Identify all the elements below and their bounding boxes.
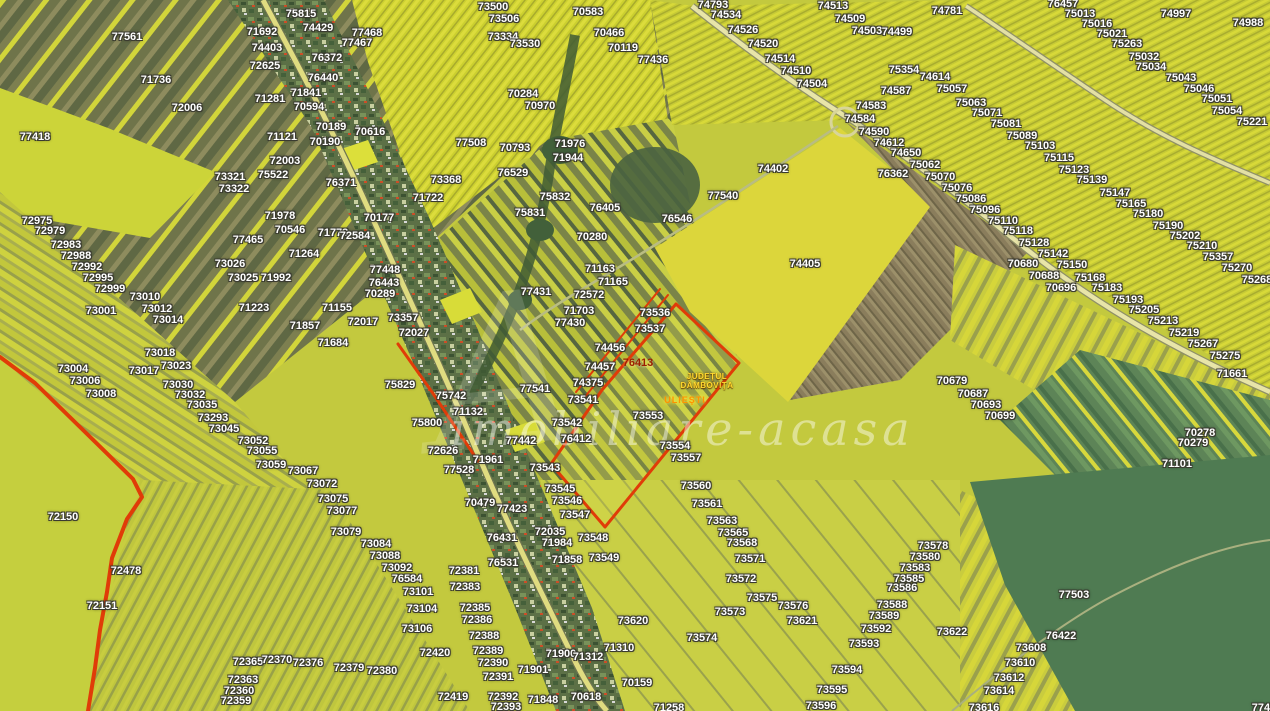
parcel-label: 73101 xyxy=(403,586,434,598)
parcel-label: 75190 xyxy=(1153,220,1184,232)
parcel-label: 72393 xyxy=(491,701,522,711)
parcel-label: 70699 xyxy=(985,410,1016,422)
parcel-label: 74534 xyxy=(711,9,742,21)
parcel-label: 76529 xyxy=(498,167,529,179)
parcel-label: 72379 xyxy=(334,662,365,674)
parcel-label: 72626 xyxy=(428,445,459,457)
parcel-label: 73563 xyxy=(707,515,738,527)
parcel-label: 75270 xyxy=(1222,262,1253,274)
parcel-label: 71944 xyxy=(553,152,584,164)
parcel-label: 74513 xyxy=(818,0,849,12)
parcel-label: 77503 xyxy=(1059,589,1090,601)
parcel-label: 73592 xyxy=(861,623,892,635)
parcel-label: 74988 xyxy=(1233,17,1264,29)
parcel-label: 75275 xyxy=(1210,350,1241,362)
parcel-label: 73548 xyxy=(578,532,609,544)
parcel-label: 75210 xyxy=(1187,240,1218,252)
parcel-label: 73554 xyxy=(660,440,691,452)
parcel-label: 72992 xyxy=(72,261,103,273)
parcel-label: 73026 xyxy=(215,258,246,270)
parcel-label: 76371 xyxy=(326,177,357,189)
parcel-label: 71310 xyxy=(604,642,635,654)
parcel-label: 71722 xyxy=(413,192,444,204)
parcel-label: 77467 xyxy=(342,37,373,49)
parcel-label: 71132 xyxy=(453,406,483,418)
parcel-label: 71121 xyxy=(267,131,297,143)
parcel-label: 75165 xyxy=(1116,198,1147,210)
parcel-label: 72006 xyxy=(172,102,203,114)
parcel-label: 70618 xyxy=(571,691,602,703)
parcel-label: 73104 xyxy=(407,603,438,615)
parcel-label: 70279 xyxy=(1178,437,1209,449)
parcel-label: 77528 xyxy=(444,464,475,476)
parcel-label: 71264 xyxy=(289,248,320,260)
parcel-label: 76372 xyxy=(312,52,343,64)
parcel-label: 71992 xyxy=(261,272,292,284)
parcel-label: 74590 xyxy=(859,126,890,138)
parcel-label: 70546 xyxy=(275,224,306,236)
parcel-label: 73106 xyxy=(402,623,433,635)
parcel-label: 73596 xyxy=(806,700,837,711)
parcel-label: 75267 xyxy=(1188,338,1219,350)
parcel-label: 73001 xyxy=(86,305,117,317)
parcel-label: 71857 xyxy=(290,320,321,332)
parcel-label: 75123 xyxy=(1059,164,1090,176)
parcel-label: 72363 xyxy=(228,674,259,686)
parcel-label: 72150 xyxy=(48,511,79,523)
parcel-label: 72376 xyxy=(293,657,324,669)
parcel-labels-layer: 7756171736720067741872975729797581574429… xyxy=(0,0,1270,711)
parcel-label: 74514 xyxy=(765,53,796,65)
parcel-label: 72988 xyxy=(61,250,92,262)
parcel-label: 77442 xyxy=(506,435,537,447)
parcel-label: 73608 xyxy=(1016,642,1047,654)
parcel-label: 75268 xyxy=(1242,274,1270,286)
parcel-label: 74503 xyxy=(852,25,883,37)
parcel-label: 74520 xyxy=(748,38,779,50)
parcel-label: 73067 xyxy=(288,465,319,477)
parcel-label: 71841 xyxy=(291,87,322,99)
parcel-label: 75800 xyxy=(412,417,443,429)
parcel-label: 72389 xyxy=(473,645,504,657)
parcel-label: 73543 xyxy=(530,462,561,474)
parcel-label: 71661 xyxy=(1217,368,1248,380)
parcel-label: 75180 xyxy=(1133,208,1164,220)
parcel-label: 73578 xyxy=(918,540,949,552)
parcel-label: 70466 xyxy=(594,27,625,39)
parcel-label: 76405 xyxy=(590,202,621,214)
parcel-label: 73585 xyxy=(894,573,925,585)
parcel-label: 73530 xyxy=(510,38,541,50)
parcel-label: 72385 xyxy=(460,602,491,614)
parcel-label: 75063 xyxy=(956,97,987,109)
parcel-label: 73500 xyxy=(478,1,509,13)
parcel-label: 75086 xyxy=(956,193,987,205)
parcel-label: 73032 xyxy=(175,389,206,401)
parcel-label: 73506 xyxy=(489,13,520,25)
parcel-label: 70479 xyxy=(465,497,496,509)
parcel-label: 72027 xyxy=(399,327,430,339)
parcel-label: 73536 xyxy=(640,307,671,319)
parcel-label: 76457 xyxy=(1048,0,1079,10)
parcel-label: 70693 xyxy=(971,399,1002,411)
parcel-label: 73079 xyxy=(331,526,362,538)
parcel-label: 75128 xyxy=(1019,237,1050,249)
parcel-label: 71901 xyxy=(518,664,549,676)
parcel-label: 75815 xyxy=(286,8,317,20)
parcel-label: 73293 xyxy=(198,412,229,424)
parcel-label: 75139 xyxy=(1077,174,1108,186)
parcel-label: 75013 xyxy=(1065,8,1096,20)
parcel-label: 73571 xyxy=(735,553,766,565)
parcel-label: 73557 xyxy=(671,452,702,464)
parcel-label: 75168 xyxy=(1075,272,1106,284)
parcel-label: 75070 xyxy=(925,171,956,183)
parcel-label: 71155 xyxy=(322,302,352,314)
parcel-label: 75021 xyxy=(1097,28,1128,40)
parcel-label: 70177 xyxy=(364,212,395,224)
parcel-label: 71978 xyxy=(265,210,296,222)
parcel-label: 72390 xyxy=(478,657,509,669)
parcel-label: 77468 xyxy=(352,27,383,39)
parcel-label: 72419 xyxy=(438,691,469,703)
parcel-label: 75142 xyxy=(1038,248,1069,260)
parcel-label: 74504 xyxy=(797,78,828,90)
parcel-label: 75103 xyxy=(1025,140,1056,152)
parcel-label: 77431 xyxy=(521,286,552,298)
parcel-label: 71703 xyxy=(564,305,595,317)
parcel-label: 74584 xyxy=(845,113,876,125)
parcel-label: 75118 xyxy=(1003,225,1033,237)
parcel-label: 74457 xyxy=(585,361,616,373)
parcel-label: 74997 xyxy=(1161,8,1192,20)
parcel-label: 74402 xyxy=(758,163,789,175)
parcel-label: 72983 xyxy=(51,239,82,251)
parcel-label: 77508 xyxy=(456,137,487,149)
parcel-label: 75081 xyxy=(991,118,1022,130)
parcel-label: 74793 xyxy=(698,0,729,11)
parcel-label: 70688 xyxy=(1029,270,1060,282)
parcel-label: 73549 xyxy=(589,552,620,564)
parcel-label: 75205 xyxy=(1129,304,1160,316)
parcel-label: 72391 xyxy=(483,671,514,683)
parcel-label: 77540 xyxy=(708,190,739,202)
parcel-label: 75043 xyxy=(1166,72,1197,84)
parcel-label: 70679 xyxy=(937,375,968,387)
parcel-label: 75110 xyxy=(988,215,1018,227)
parcel-label: 75096 xyxy=(970,204,1001,216)
parcel-label: 73072 xyxy=(307,478,338,490)
parcel-label: 73545 xyxy=(545,483,576,495)
parcel-label: 73025 xyxy=(228,272,259,284)
parcel-label: 73368 xyxy=(431,174,462,186)
parcel-label: 76546 xyxy=(662,213,693,225)
parcel-label: 75221 xyxy=(1237,116,1268,128)
parcel-label: 73030 xyxy=(163,379,194,391)
parcel-label: 73576 xyxy=(778,600,809,612)
parcel-label: 73583 xyxy=(900,562,931,574)
parcel-label: 72035 xyxy=(535,526,566,538)
parcel-label: 73055 xyxy=(247,445,278,457)
parcel-label: 73537 xyxy=(635,323,666,335)
parcel-label: 75829 xyxy=(385,379,416,391)
parcel-label: 73561 xyxy=(692,498,723,510)
parcel-label: 73574 xyxy=(687,632,718,644)
parcel-label: 71773 xyxy=(318,227,349,239)
parcel-label: 73059 xyxy=(256,459,287,471)
parcel-label: 77541 xyxy=(520,383,551,395)
parcel-label: 73614 xyxy=(984,685,1015,697)
parcel-label: 73565 xyxy=(718,527,749,539)
parcel-label: 71900 xyxy=(546,648,577,660)
parcel-label: 73593 xyxy=(849,638,880,650)
parcel-label: 73322 xyxy=(219,183,250,195)
parcel-label: 77424 xyxy=(1252,702,1270,711)
parcel-label: 71223 xyxy=(239,302,270,314)
parcel-label: 75213 xyxy=(1148,315,1179,327)
parcel-label: 73018 xyxy=(145,347,176,359)
parcel-label: 74510 xyxy=(781,65,812,77)
parcel-label: 77448 xyxy=(370,264,401,276)
parcel-label: 73621 xyxy=(787,615,818,627)
parcel-label: 75076 xyxy=(942,182,973,194)
parcel-label: 70793 xyxy=(500,142,531,154)
parcel-label: 73610 xyxy=(1005,657,1036,669)
parcel-label: 73542 xyxy=(552,417,583,429)
parcel-label: 72979 xyxy=(35,225,66,237)
parcel-label: 72625 xyxy=(250,60,281,72)
parcel-label: 75522 xyxy=(258,169,289,181)
parcel-label: 73620 xyxy=(618,615,649,627)
parcel-label: 73014 xyxy=(153,314,184,326)
parcel-label: 75202 xyxy=(1170,230,1201,242)
parcel-label: 72151 xyxy=(87,600,118,612)
parcel-label: 73589 xyxy=(869,610,900,622)
parcel-label: 75051 xyxy=(1202,93,1233,105)
parcel-label: 71281 xyxy=(255,93,286,105)
parcel-label: 74612 xyxy=(874,137,905,149)
parcel-label: 70583 xyxy=(573,6,604,18)
parcel-label: 73010 xyxy=(130,291,161,303)
parcel-label: 75147 xyxy=(1100,187,1131,199)
parcel-label: 75742 xyxy=(436,390,467,402)
parcel-label: 76440 xyxy=(308,72,339,84)
parcel-label: 76431 xyxy=(487,532,518,544)
parcel-label: 73575 xyxy=(747,592,778,604)
parcel-label: 75219 xyxy=(1169,327,1200,339)
parcel-label: 71258 xyxy=(654,702,685,711)
parcel-label: 73004 xyxy=(58,363,89,375)
parcel-label: 73573 xyxy=(715,606,746,618)
parcel-label: 71976 xyxy=(555,138,586,150)
parcel-label: 73092 xyxy=(382,562,413,574)
parcel-label: 77465 xyxy=(233,234,264,246)
parcel-label: 73045 xyxy=(209,423,240,435)
parcel-label: 73588 xyxy=(877,599,908,611)
parcel-label: 72003 xyxy=(270,155,301,167)
parcel-label: 73622 xyxy=(937,626,968,638)
parcel-label: 75354 xyxy=(889,64,920,76)
parcel-label: 77436 xyxy=(638,54,669,66)
parcel-label: 70280 xyxy=(577,231,608,243)
parcel-label: 72360 xyxy=(224,685,255,697)
parcel-label: 73553 xyxy=(633,410,664,422)
parcel-label: 75089 xyxy=(1007,130,1038,142)
parcel-label: 73616 xyxy=(969,702,1000,711)
parcel-label: 73586 xyxy=(887,582,918,594)
parcel-label: 73012 xyxy=(142,303,173,315)
parcel-label: 72017 xyxy=(348,316,379,328)
parcel-label: 70278 xyxy=(1185,427,1216,439)
parcel-label: 75115 xyxy=(1044,152,1074,164)
parcel-label: 72380 xyxy=(367,665,398,677)
parcel-label: 74587 xyxy=(881,85,912,97)
parcel-label: 70284 xyxy=(508,88,539,100)
parcel-label: 76531 xyxy=(488,557,519,569)
parcel-label: 73006 xyxy=(70,375,101,387)
parcel-label: 72572 xyxy=(574,289,605,301)
parcel-label: 74456 xyxy=(595,342,626,354)
parcel-label: 75032 xyxy=(1129,51,1160,63)
parcel-label: 77561 xyxy=(112,31,143,43)
parcel-label: 75046 xyxy=(1184,83,1215,95)
parcel-label: 70189 xyxy=(316,121,347,133)
parcel-label: 72584 xyxy=(340,230,371,242)
parcel-label: 73572 xyxy=(726,573,757,585)
parcel-label: 72420 xyxy=(420,647,451,659)
parcel-label: 76422 xyxy=(1046,630,1077,642)
parcel-label: 70970 xyxy=(525,100,556,112)
parcel-label: 72392 xyxy=(488,691,519,703)
parcel-label: 75193 xyxy=(1113,294,1144,306)
parcel-label: 71692 xyxy=(247,26,278,38)
parcel-label: 71848 xyxy=(528,694,559,706)
parcel-label: 72381 xyxy=(449,565,480,577)
parcel-label: 72370 xyxy=(262,654,293,666)
parcel-label: 75062 xyxy=(910,159,941,171)
parcel-label: 76362 xyxy=(878,168,909,180)
parcel-label: 73084 xyxy=(361,538,392,550)
parcel-label: 71736 xyxy=(141,74,172,86)
parcel-label: 71984 xyxy=(542,537,573,549)
parcel-label: 70159 xyxy=(622,677,653,689)
parcel-label: 72999 xyxy=(95,283,126,295)
parcel-label: 73541 xyxy=(568,394,599,406)
parcel-label: 70190 xyxy=(310,136,341,148)
parcel-label: 74650 xyxy=(891,147,922,159)
parcel-label: 73088 xyxy=(370,550,401,562)
parcel-label: 73077 xyxy=(327,505,358,517)
parcel-label: 72359 xyxy=(221,695,252,707)
parcel-label: 77423 xyxy=(497,503,528,515)
parcel-label: 72995 xyxy=(83,272,114,284)
parcel-label: 75071 xyxy=(972,107,1003,119)
parcel-label: 71961 xyxy=(473,454,504,466)
parcel-label: 72388 xyxy=(469,630,500,642)
parcel-label: 73052 xyxy=(238,435,269,447)
parcel-label: 73334 xyxy=(488,31,519,43)
parcel-label: 75183 xyxy=(1092,282,1123,294)
parcel-label: 73546 xyxy=(552,495,583,507)
parcel-label: 72975 xyxy=(22,215,53,227)
parcel-label: 73580 xyxy=(910,551,941,563)
cadastral-map[interactable]: A imobiliare-acasa 775617173672006774187… xyxy=(0,0,1270,711)
parcel-label: 74509 xyxy=(835,13,866,25)
parcel-label: 75263 xyxy=(1112,38,1143,50)
parcel-label: 73035 xyxy=(187,399,218,411)
parcel-label: 75831 xyxy=(515,207,546,219)
parcel-label: 71858 xyxy=(552,554,583,566)
parcel-label: 73612 xyxy=(994,672,1025,684)
parcel-label: 73357 xyxy=(388,312,419,324)
parcel-label: 74499 xyxy=(882,26,913,38)
parcel-label: 70680 xyxy=(1008,258,1039,270)
parcel-label: 72386 xyxy=(462,614,493,626)
parcel-label: 71684 xyxy=(318,337,349,349)
parcel-label: 70289 xyxy=(365,288,396,300)
parcel-label: 70119 xyxy=(608,42,638,54)
parcel-label: 75357 xyxy=(1203,251,1234,263)
parcel-label: 73568 xyxy=(727,537,758,549)
parcel-label: 75016 xyxy=(1082,18,1113,30)
parcel-label: 72365 xyxy=(233,656,264,668)
parcel-label: 73075 xyxy=(318,493,349,505)
parcel-label: 74781 xyxy=(932,5,963,17)
parcel-label: 73321 xyxy=(215,171,246,183)
parcel-label: 74375 xyxy=(573,377,604,389)
parcel-label: 71163 xyxy=(585,263,615,275)
parcel-label: 76443 xyxy=(369,277,400,289)
parcel-label: 73595 xyxy=(817,684,848,696)
parcel-label: 77418 xyxy=(20,131,51,143)
parcel-label: 76584 xyxy=(392,573,423,585)
parcel-label: 74614 xyxy=(920,71,951,83)
parcel-label: 73008 xyxy=(86,388,117,400)
parcel-label: 73017 xyxy=(129,365,160,377)
parcel-label: 73594 xyxy=(832,664,863,676)
parcel-label: 70687 xyxy=(958,388,989,400)
parcel-label: 73560 xyxy=(681,480,712,492)
parcel-label: 74403 xyxy=(252,42,283,54)
parcel-label: 75150 xyxy=(1057,259,1088,271)
parcel-label: 72478 xyxy=(111,565,142,577)
parcel-label: 74429 xyxy=(303,22,334,34)
parcel-label: 71312 xyxy=(573,651,604,663)
parcel-label: 74405 xyxy=(790,258,821,270)
parcel-label: 75057 xyxy=(937,83,968,95)
parcel-label: 72383 xyxy=(450,581,481,593)
parcel-label: 75832 xyxy=(540,191,571,203)
parcel-label: 71101 xyxy=(1162,458,1192,470)
parcel-label: 70594 xyxy=(294,101,325,113)
parcel-label: 76412 xyxy=(561,433,592,445)
parcel-label: 71165 xyxy=(598,276,628,288)
parcel-label: 74583 xyxy=(856,100,887,112)
parcel-label: 75034 xyxy=(1136,61,1167,73)
parcel-label: 73023 xyxy=(161,360,192,372)
parcel-label: 75054 xyxy=(1212,105,1243,117)
parcel-label: 74526 xyxy=(728,24,759,36)
parcel-label: 70696 xyxy=(1046,282,1077,294)
parcel-label: 77430 xyxy=(555,317,586,329)
parcel-label: 70616 xyxy=(355,126,386,138)
parcel-label: 73547 xyxy=(560,509,591,521)
